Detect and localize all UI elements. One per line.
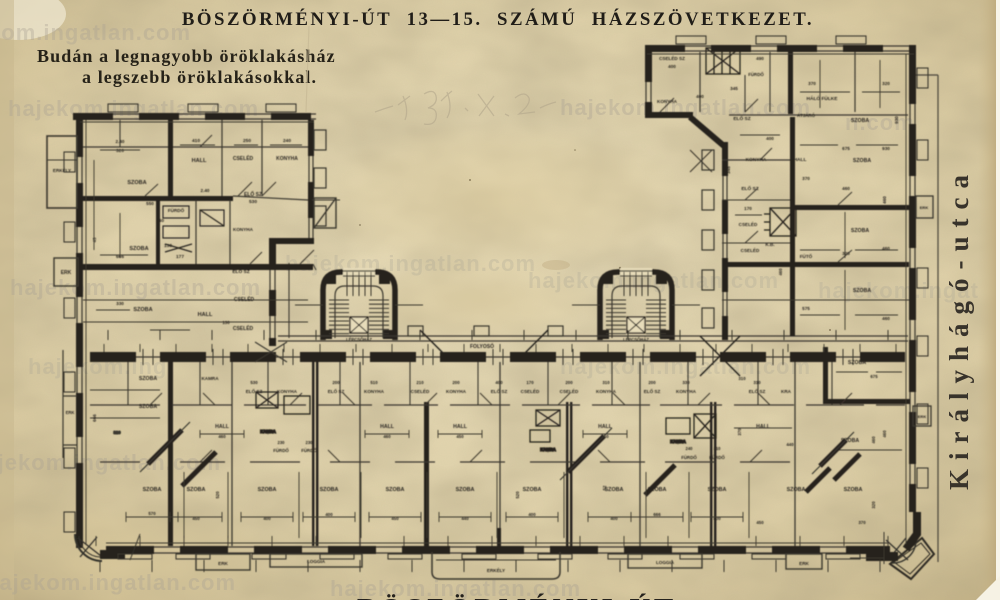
svg-text:SZOBA: SZOBA	[605, 487, 624, 493]
svg-text:KONYHA: KONYHA	[277, 389, 298, 394]
svg-text:345: 345	[726, 166, 731, 174]
svg-text:370: 370	[808, 81, 816, 86]
svg-text:460: 460	[871, 436, 876, 444]
svg-text:a legszebb öröklakásokkal.: a legszebb öröklakásokkal.	[82, 67, 317, 87]
svg-text:320: 320	[882, 81, 890, 86]
svg-text:ELŐ SZ: ELŐ SZ	[246, 388, 263, 394]
svg-text:SZOBA: SZOBA	[853, 288, 871, 294]
svg-text:SZOBA: SZOBA	[139, 376, 157, 382]
svg-text:230: 230	[278, 440, 286, 445]
svg-text:SZOBA: SZOBA	[139, 404, 157, 410]
svg-text:370: 370	[737, 428, 742, 436]
svg-text:200: 200	[332, 380, 340, 385]
svg-text:SZOBA: SZOBA	[127, 180, 146, 186]
svg-text:200: 200	[648, 380, 656, 385]
svg-text:SZOBA: SZOBA	[787, 487, 806, 493]
svg-text:KAMRA: KAMRA	[670, 439, 686, 444]
svg-text:BÖSZÖRMÉNYI-ÚT 13—15. SZÁMÚ: BÖSZÖRMÉNYI-ÚT 13—15. SZÁMÚ HÁZSZÖVETKEZ…	[182, 8, 814, 30]
svg-text:400: 400	[528, 512, 536, 517]
svg-text:FÜRDŐ: FÜRDŐ	[168, 207, 185, 213]
svg-text:310: 310	[753, 380, 761, 385]
svg-text:KONYHA: KONYHA	[657, 99, 678, 104]
svg-text:330: 330	[682, 380, 690, 385]
svg-text:HALL: HALL	[215, 424, 230, 430]
svg-text:130: 130	[164, 243, 172, 249]
svg-text:SZOBA: SZOBA	[848, 360, 866, 366]
svg-text:SZOBA: SZOBA	[320, 487, 339, 493]
svg-text:310: 310	[738, 376, 746, 381]
svg-text:FÜTŐ: FÜTŐ	[800, 253, 813, 259]
svg-text:SZOBA: SZOBA	[523, 487, 542, 493]
svg-text:675: 675	[870, 374, 878, 379]
svg-text:450: 450	[756, 520, 764, 525]
svg-text:K.B.: K.B.	[765, 242, 774, 247]
svg-text:520: 520	[515, 491, 520, 499]
svg-text:FÜRDŐ: FÜRDŐ	[748, 72, 764, 77]
svg-text:CSELÉD: CSELÉD	[739, 220, 758, 227]
svg-text:930: 930	[882, 146, 890, 151]
svg-text:820: 820	[113, 430, 121, 435]
svg-text:hajekom.ingatlan.com: hajekom.ingatlan.com	[285, 251, 536, 276]
svg-text:400: 400	[766, 136, 774, 141]
svg-text:170: 170	[526, 380, 534, 385]
svg-text:ERK: ERK	[920, 205, 929, 210]
svg-text:130: 130	[222, 320, 230, 325]
svg-text:ERK: ERK	[918, 414, 927, 419]
svg-text:666: 666	[92, 414, 97, 422]
svg-text:450: 450	[456, 434, 464, 439]
svg-text:460: 460	[842, 186, 850, 191]
svg-text:240: 240	[686, 446, 694, 451]
svg-text:400: 400	[495, 380, 503, 385]
svg-text:250: 250	[243, 138, 251, 144]
svg-text:210: 210	[416, 380, 424, 385]
svg-text:Királyhágó-utca: Királyhágó-utca	[944, 166, 974, 490]
svg-text:575: 575	[802, 306, 810, 311]
svg-text:FÜRDŐ: FÜRDŐ	[681, 455, 697, 460]
svg-text:200: 200	[565, 380, 573, 385]
svg-text:ÁTJÁRÓ: ÁTJÁRÓ	[797, 113, 816, 118]
svg-text:510: 510	[370, 380, 378, 385]
svg-text:SZOBA: SZOBA	[456, 487, 475, 493]
svg-text:370: 370	[858, 520, 866, 525]
svg-text:240: 240	[156, 218, 164, 224]
svg-text:KONYHA: KONYHA	[446, 389, 467, 394]
svg-text:310: 310	[602, 380, 610, 385]
svg-text:177: 177	[176, 254, 184, 260]
svg-text:SZOBA: SZOBA	[844, 487, 863, 493]
svg-text:hajekom.ingatlan.com: hajekom.ingatlan.com	[0, 20, 191, 45]
svg-text:530: 530	[249, 199, 257, 205]
svg-text:2.40: 2.40	[201, 188, 210, 193]
svg-text:240: 240	[283, 138, 291, 144]
svg-text:930: 930	[894, 116, 899, 124]
svg-text:SZOBA: SZOBA	[851, 228, 869, 234]
svg-text:HALL: HALL	[794, 157, 807, 163]
svg-text:KRA: KRA	[781, 389, 792, 394]
svg-text:320: 320	[116, 148, 124, 154]
svg-text:KAMRA: KAMRA	[540, 447, 556, 452]
svg-text:460: 460	[882, 196, 887, 204]
svg-text:CSELÉD: CSELÉD	[560, 387, 579, 394]
svg-text:CSELÉD: CSELÉD	[233, 154, 254, 162]
svg-text:CSELÉD: CSELÉD	[521, 387, 540, 394]
svg-text:DIVÁN: DIVÁN	[173, 353, 188, 359]
svg-text:ERK: ERK	[66, 410, 75, 415]
svg-text:ELŐ SZ: ELŐ SZ	[644, 388, 661, 394]
svg-text:675: 675	[842, 146, 850, 151]
svg-text:HALL: HALL	[453, 424, 468, 430]
svg-text:SZOBA: SZOBA	[851, 118, 869, 124]
svg-text:KONYHA: KONYHA	[746, 157, 767, 163]
svg-text:550: 550	[146, 201, 154, 206]
svg-text:ERK: ERK	[799, 561, 809, 566]
svg-text:345: 345	[730, 86, 738, 91]
svg-text:400: 400	[668, 64, 676, 69]
svg-text:SZOBA: SZOBA	[143, 487, 162, 493]
svg-text:ELŐ SZ: ELŐ SZ	[741, 185, 758, 192]
svg-text:CSELÉD SZ: CSELÉD SZ	[659, 54, 685, 61]
svg-text:Budán a legnagyobb öröklakáshá: Budán a legnagyobb öröklakásház	[37, 46, 336, 66]
svg-text:FÜRDŐ: FÜRDŐ	[301, 448, 317, 453]
svg-text:KAMRA: KAMRA	[201, 376, 219, 381]
svg-text:330: 330	[116, 301, 124, 306]
svg-text:CSELÉD: CSELÉD	[234, 295, 255, 303]
svg-text:HALL: HALL	[380, 424, 395, 430]
svg-text:HALL: HALL	[198, 312, 213, 318]
svg-text:SZOBA: SZOBA	[386, 487, 405, 493]
svg-text:52: 52	[602, 485, 607, 490]
svg-text:hajekom.ingatlan.com: hajekom.ingatlan.com	[0, 570, 236, 595]
svg-text:570: 570	[148, 511, 156, 516]
svg-text:ERK: ERK	[218, 561, 228, 566]
svg-text:SZOBA: SZOBA	[708, 487, 727, 493]
svg-text:460: 460	[218, 434, 226, 439]
svg-text:370: 370	[802, 176, 810, 181]
svg-text:2.40: 2.40	[116, 139, 125, 144]
svg-text:ELŐ SZ: ELŐ SZ	[232, 268, 249, 275]
svg-text:230: 230	[306, 440, 314, 445]
svg-text:HALL: HALL	[192, 158, 207, 164]
svg-text:460: 460	[383, 434, 391, 439]
svg-text:SZOBA: SZOBA	[187, 487, 206, 493]
svg-text:440: 440	[786, 442, 794, 447]
svg-text:KONYHA: KONYHA	[233, 227, 254, 232]
svg-text:SZOBA: SZOBA	[133, 307, 152, 313]
svg-text:ELŐ SZ: ELŐ SZ	[244, 191, 262, 198]
svg-text:CSELÉD: CSELÉD	[233, 324, 254, 332]
svg-text:400: 400	[696, 94, 704, 99]
svg-text:ERK: ERK	[61, 270, 72, 276]
svg-text:BÖSZÖRMÉNYI-ÚT: BÖSZÖRMÉNYI-ÚT	[357, 592, 677, 600]
svg-text:ELŐ SZ: ELŐ SZ	[328, 388, 345, 394]
svg-text:400: 400	[325, 512, 333, 517]
svg-text:ELŐ SZ: ELŐ SZ	[733, 115, 750, 122]
svg-text:SZOBA: SZOBA	[129, 246, 148, 252]
svg-text:KONYHA: KONYHA	[364, 389, 385, 394]
svg-text:ELŐ SZ: ELŐ SZ	[749, 388, 766, 394]
svg-text:310: 310	[714, 446, 722, 451]
svg-text:666: 666	[653, 512, 661, 517]
svg-text:SZOBA: SZOBA	[258, 487, 277, 493]
svg-text:LOGGIA: LOGGIA	[307, 559, 326, 564]
svg-text:170: 170	[744, 206, 752, 211]
svg-text:CSELÉD: CSELÉD	[741, 246, 760, 253]
svg-text:45: 45	[92, 237, 97, 242]
svg-text:490: 490	[756, 56, 764, 61]
svg-text:FÜRDŐ: FÜRDŐ	[709, 455, 725, 460]
svg-text:SZOBA: SZOBA	[853, 158, 871, 164]
svg-text:530: 530	[250, 380, 258, 385]
svg-text:FÜRDŐ: FÜRDŐ	[273, 448, 289, 453]
svg-text:ERKÉLY: ERKÉLY	[487, 566, 505, 573]
svg-text:520: 520	[215, 491, 220, 499]
svg-text:FOLYOSÓ: FOLYOSÓ	[470, 342, 494, 350]
svg-text:ELŐ SZ: ELŐ SZ	[491, 388, 508, 394]
svg-text:HALL: HALL	[756, 424, 771, 430]
svg-text:CSELÉD: CSELÉD	[411, 387, 430, 394]
svg-text:200: 200	[452, 380, 460, 385]
svg-text:460: 460	[882, 430, 887, 438]
svg-text:KAMRA: KAMRA	[260, 429, 276, 434]
svg-text:KONYHA: KONYHA	[276, 156, 298, 162]
svg-text:320: 320	[871, 501, 876, 509]
svg-text:hajekom.ingatlan.com: hajekom.ingatlan.com	[10, 275, 261, 300]
svg-text:460: 460	[778, 268, 783, 276]
svg-text:460: 460	[882, 316, 890, 321]
svg-text:410: 410	[192, 138, 200, 144]
svg-text:KONYHA: KONYHA	[676, 389, 697, 394]
